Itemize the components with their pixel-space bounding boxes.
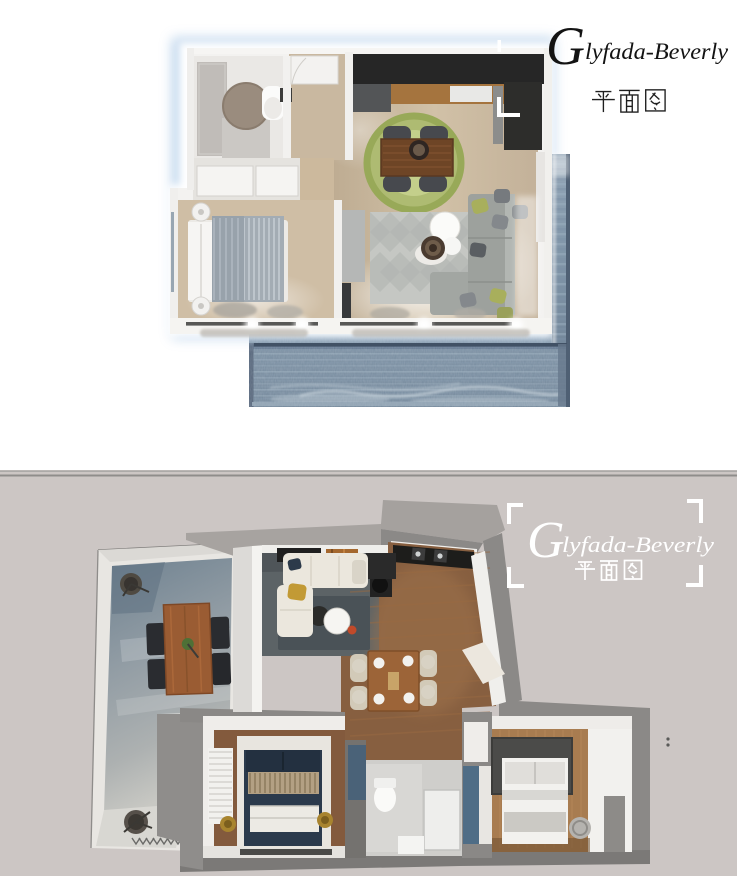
svg-text:G: G — [527, 512, 565, 569]
svg-text:lyfada-Beverly: lyfada-Beverly — [562, 532, 714, 557]
svg-text:lyfada-Beverly: lyfada-Beverly — [585, 39, 729, 64]
svg-text:G: G — [546, 16, 585, 76]
